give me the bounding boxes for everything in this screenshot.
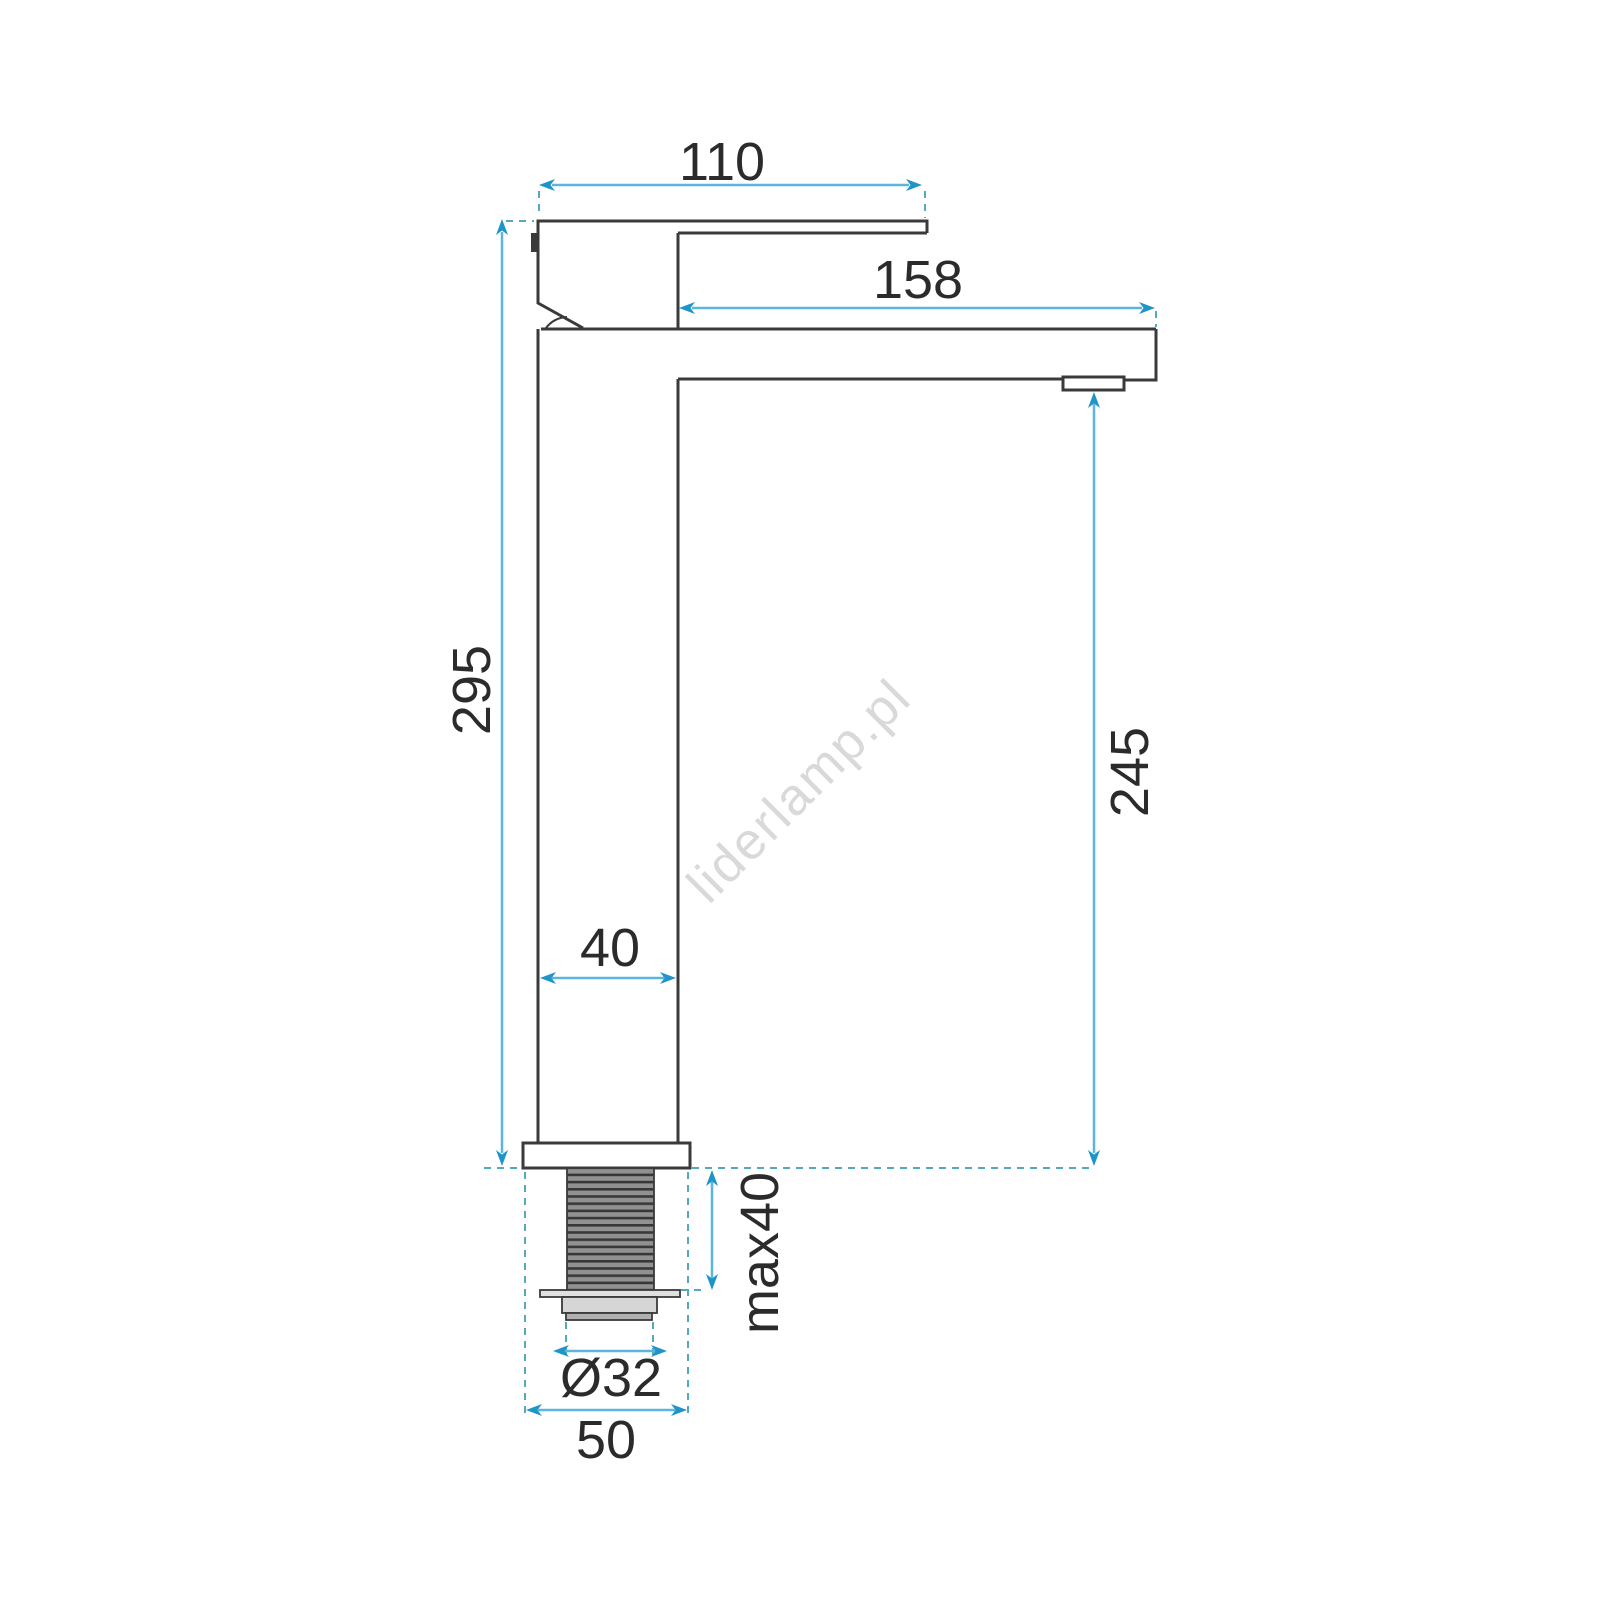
washer (540, 1290, 680, 1297)
watermark-text: liderlamp.pl (676, 668, 922, 914)
threaded-stud (567, 1168, 654, 1291)
dim-total-height: 295 (442, 219, 508, 1166)
mounting-nut (562, 1297, 657, 1313)
dim-body-width: 40 (540, 918, 676, 984)
dim-245-label: 245 (1100, 727, 1160, 817)
base-plate (523, 1143, 690, 1168)
dim-110-label: 110 (679, 132, 765, 192)
dim-max40-label: max40 (730, 1172, 790, 1334)
technical-drawing-page: liderlamp.pl (0, 0, 1600, 1600)
dim-handle-length: 110 (539, 132, 922, 192)
dim-mounting-thickness: max40 (706, 1170, 790, 1334)
aerator (1063, 377, 1124, 390)
dim-spout-height: 245 (1088, 392, 1160, 1166)
dim-295-label: 295 (442, 645, 502, 735)
set-screw-notch (531, 233, 537, 252)
faucet-dimension-diagram: liderlamp.pl (0, 0, 1600, 1600)
dim-base-diameter: 50 (526, 1404, 687, 1470)
dim-158-label: 158 (873, 250, 963, 310)
dim-spout-reach: 158 (679, 250, 1155, 314)
dim-50-label: 50 (576, 1410, 636, 1470)
dim-o32-label: Ø32 (560, 1348, 662, 1408)
nut-lower-ring (566, 1313, 652, 1320)
dim-40-label: 40 (580, 918, 640, 978)
dim-thread-diameter: Ø32 (553, 1345, 667, 1408)
lever-handle (538, 221, 927, 328)
spout-end-edge (1124, 329, 1156, 380)
